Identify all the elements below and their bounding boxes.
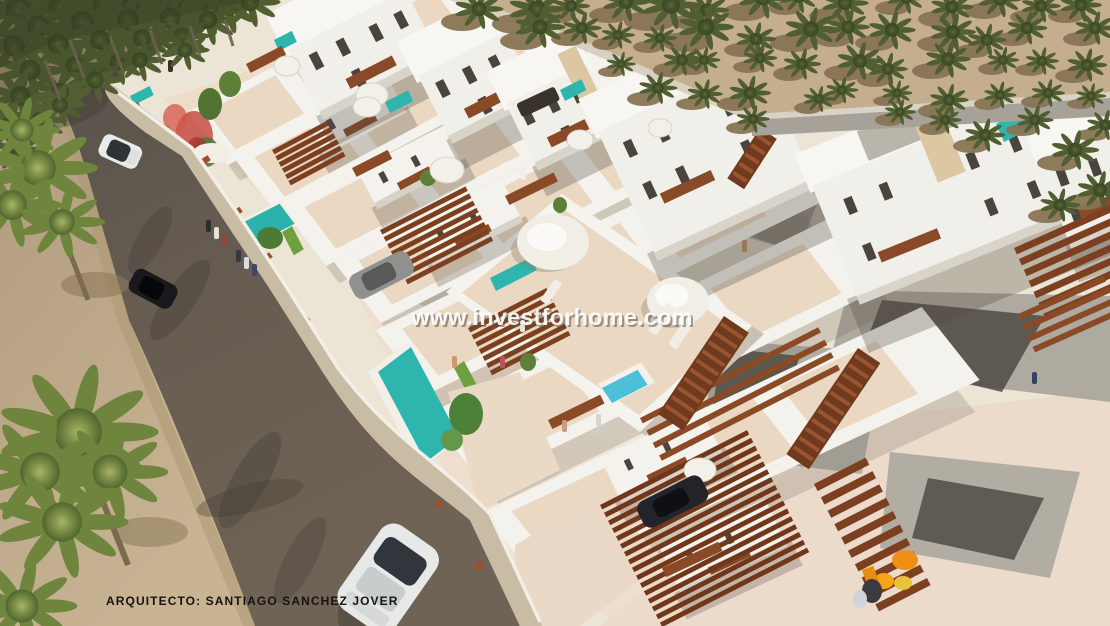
- svg-text:www.investforhome.com: www.investforhome.com: [410, 304, 692, 330]
- svg-text:ARQUITECTO: SANTIAGO SANCHEZ J: ARQUITECTO: SANTIAGO SANCHEZ JOVER: [106, 594, 399, 608]
